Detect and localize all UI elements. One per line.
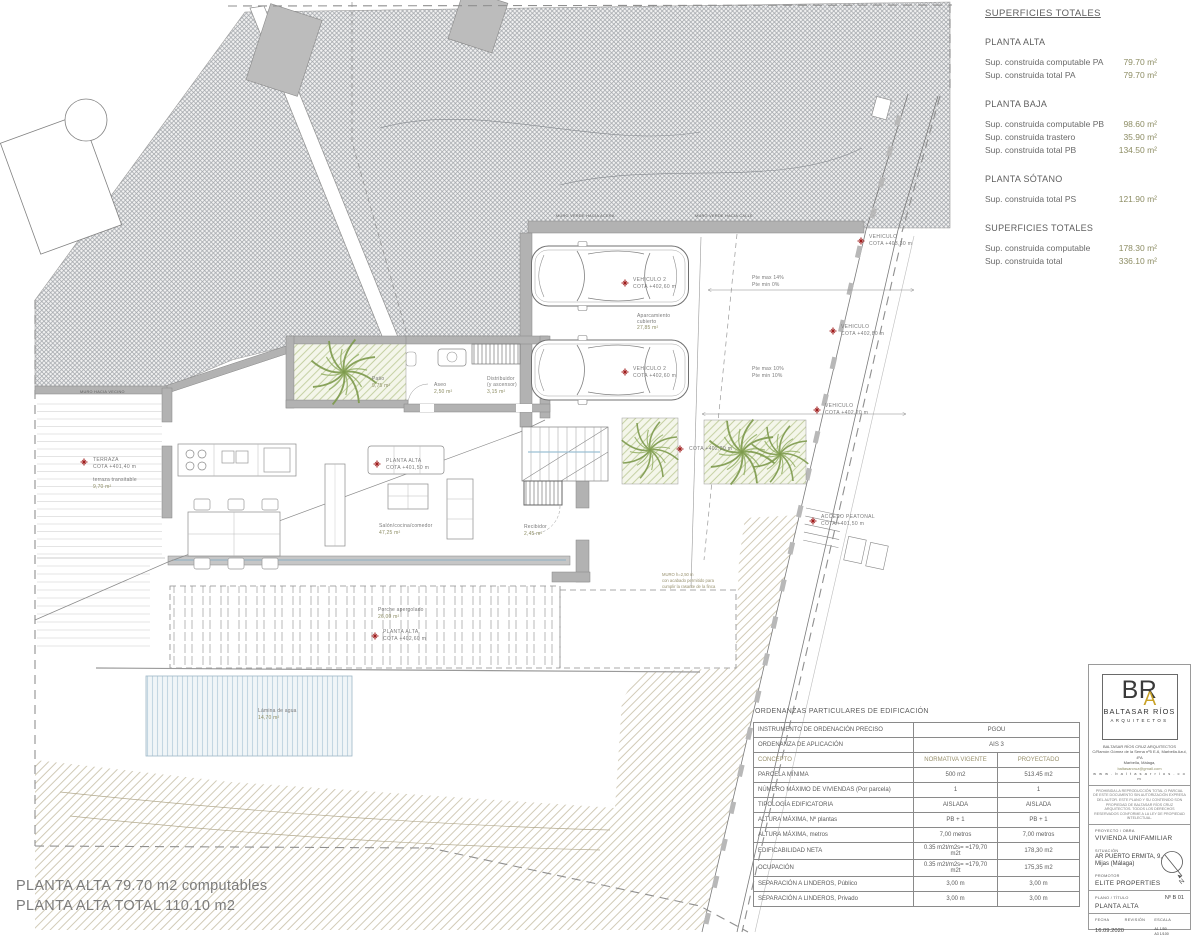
label-muro-verde-2: MURO VERDE HACIA CALLE	[695, 214, 753, 218]
svg-text:14,70 m²: 14,70 m²	[258, 715, 279, 721]
wardrobe	[472, 344, 520, 364]
svg-text:Pte min 10%: Pte min 10%	[752, 373, 783, 379]
terrace-deck	[37, 404, 165, 646]
svg-text:(y ascensor): (y ascensor)	[487, 382, 517, 388]
table-row: NÚMERO MÁXIMO DE VIVIENDAS (Por parcela)…	[754, 783, 1080, 798]
label-planta-alta: PLANTA ALTA	[386, 458, 422, 464]
superficies-panel: SUPERFICIES TOTALES PLANTA ALTA Sup. con…	[985, 8, 1157, 268]
sup-row: Sup. construida computable PB98.60 m²	[985, 118, 1157, 131]
label-vehiculo-top: VEHICULO 2	[633, 277, 666, 283]
table-row: SEPARACIÓN A LINDEROS, Público3,00 m3,00…	[754, 877, 1080, 892]
label-vehiculo-40220: VEHICULO	[825, 403, 853, 409]
table-row: OCUPACIÓN0.35 m2t/m2s= =179,70 m2t175,35…	[754, 860, 1080, 877]
table-row: ORDENANZA DE APLICACIÓNAIS 3	[754, 738, 1080, 753]
label-pte-lower: Pte max 10%	[752, 366, 784, 372]
bathroom-fixtures	[406, 349, 466, 404]
label-vehiculo-bottom: VEHICULO 2	[633, 366, 666, 372]
sup-row: Sup. construida total PA79.70 m²	[985, 69, 1157, 82]
promotor-label: PROMOTOR	[1095, 874, 1184, 878]
section-planta-sotano: PLANTA SÓTANO	[985, 174, 1157, 184]
slab-edge	[96, 668, 700, 672]
label-vehiculo-403: VEHICULO	[869, 234, 897, 240]
label-recibidor: Recibidor	[524, 524, 547, 530]
logo-gold-a: A	[1144, 689, 1157, 711]
table-header-row: CONCEPTONORMATIVA VIGENTEPROYECTADO	[754, 753, 1080, 768]
svg-text:2,45 m²: 2,45 m²	[524, 531, 542, 537]
label-muro-vecino: MURO HACIA VECINO	[80, 390, 125, 394]
situacion-section: SITUACIÓN AR PUERTO ERMITA, 9, Mijas (Má…	[1089, 845, 1190, 870]
svg-text:COTA +401,40 m: COTA +401,40 m	[93, 464, 136, 470]
svg-text:COTA +401,50 m: COTA +401,50 m	[386, 465, 429, 471]
plano-section: PLANO / TÍTULO Nº B 01 PLANTA ALTA	[1089, 890, 1190, 913]
titleblock-footer: FECHA 16.09.2020 REVISIÓN ESCALA A1 1/50…	[1089, 913, 1190, 936]
svg-text:2,50 m²: 2,50 m²	[434, 389, 452, 395]
superficies-title: SUPERFICIES TOTALES	[985, 8, 1157, 19]
sup-row: Sup. construida total336.10 m²	[985, 255, 1157, 268]
promotor-value: ELITE PROPERTIES	[1095, 880, 1184, 887]
fecha-cell: FECHA 16.09.2020	[1095, 918, 1125, 936]
svg-text:COTA +402,80 m: COTA +402,80 m	[841, 331, 884, 337]
table-row: ALTURA MÁXIMA, metros7,00 metros7,00 met…	[754, 828, 1080, 843]
door-opening	[516, 404, 532, 412]
label-lamina-agua: Lámina de agua	[258, 708, 297, 714]
annotation-line1: PLANTA ALTA 79.70 m2 computables	[16, 876, 267, 896]
logo-subtitle: ARQUITECTOS	[1103, 718, 1177, 723]
table-row: EDIFICABILIDAD NETA0.35 m2t/m2s= =179,70…	[754, 843, 1080, 860]
label-cota-mid: COTA +402,20 m	[689, 446, 732, 452]
label-pte-upper: Pte max 14%	[752, 275, 784, 281]
label-aseo: Aseo	[434, 382, 446, 388]
sup-row: Sup. construida total PB134.50 m²	[985, 144, 1157, 157]
svg-text:cumplir la rasante de la finca: cumplir la rasante de la finca	[662, 584, 716, 589]
svg-text:COTA +402,60 m: COTA +402,60 m	[633, 284, 676, 290]
promotor-section: PROMOTOR ELITE PROPERTIES	[1089, 870, 1190, 890]
table-row: ALTURA MÁXIMA, Nº plantasPB + 1PB + 1	[754, 813, 1080, 828]
architect-logo: BR A BALTASAR RÍOS ARQUITECTOS	[1102, 674, 1178, 740]
sup-row: Sup. construida trastero35.90 m²	[985, 131, 1157, 144]
terrain-hatch	[35, 2, 950, 393]
furniture	[178, 444, 473, 569]
svg-text:47,25 m²: 47,25 m²	[379, 530, 400, 536]
drawing-sheet: VEHICULO 2 COTA +402,60 m VEHICULO 2 COT…	[0, 0, 1200, 936]
section-planta-alta: PLANTA ALTA	[985, 37, 1157, 47]
label-salon: Salón/cocina/comedor	[379, 523, 433, 529]
plano-value: PLANTA ALTA	[1095, 903, 1184, 910]
sheet-annotation: PLANTA ALTA 79.70 m2 computables PLANTA …	[16, 876, 267, 916]
title-block: BR A BALTASAR RÍOS ARQUITECTOS BALTASAR …	[1088, 664, 1191, 930]
label-terraza-transitable: terraza transitable	[93, 477, 137, 483]
label-porche: Porche apergolado	[378, 607, 424, 613]
car-top-view-icon	[532, 242, 689, 311]
label-planta-alta-porche: PLANTA ALTA	[383, 629, 419, 635]
table-row: PARCELA MÍNIMA500 m2513.45 m2	[754, 768, 1080, 783]
svg-text:9,70 m²: 9,70 m²	[93, 484, 111, 490]
revision-cell: REVISIÓN	[1125, 918, 1155, 936]
proyecto-section: PROYECTO / OBRA VIVIENDA UNIFAMILIAR	[1089, 825, 1190, 845]
label-vehiculo-40280: VEHICULO	[841, 324, 869, 330]
section-totales: SUPERFICIES TOTALES	[985, 223, 1157, 233]
svg-text:COTA +403,30 m: COTA +403,30 m	[869, 241, 912, 247]
ordenanzas-table: INSTRUMENTO DE ORDENACIÓN PRECISOPGOU OR…	[753, 722, 1080, 907]
wardrobe	[524, 481, 562, 505]
svg-text:9,75 m²: 9,75 m²	[372, 383, 390, 389]
svg-text:Pte min 0%: Pte min 0%	[752, 282, 780, 288]
svg-text:con acabado permitido para: con acabado permitido para	[662, 578, 715, 583]
svg-text:27,85 m²: 27,85 m²	[637, 325, 658, 331]
sup-row: Sup. construida computable178.30 m²	[985, 242, 1157, 255]
staircase	[522, 427, 608, 481]
plano-label: PLANO / TÍTULO	[1095, 896, 1129, 900]
label-muro-verde-1: MURO VERDE HACIA ACERA	[556, 214, 615, 218]
label-terraza: TERRAZA	[93, 457, 119, 463]
door-opening	[420, 404, 434, 412]
svg-text:26,00 m²: 26,00 m²	[378, 614, 399, 620]
table-row: INSTRUMENTO DE ORDENACIÓN PRECISOPGOU	[754, 723, 1080, 738]
label-muro-nota: MURO h=2,50 m	[662, 572, 694, 577]
svg-text:COTA +402,20 m: COTA +402,20 m	[825, 410, 868, 416]
pergola	[170, 586, 560, 668]
svg-text:COTA +402,60 m: COTA +402,60 m	[633, 373, 676, 379]
fecha-value: 16.09.2020	[1095, 928, 1125, 934]
legal-notice: PROHIBIDA LA REPRODUCCIÓN TOTAL O PARCIA…	[1089, 785, 1190, 825]
firm-address: BALTASAR RÍOS CRUZ ARQUITECTOS C/Ramón G…	[1091, 744, 1188, 782]
escala-cell: ESCALA A1 1/50A3 1/100	[1154, 918, 1184, 936]
proyecto-label: PROYECTO / OBRA	[1095, 829, 1184, 833]
logo-name: BALTASAR RÍOS	[1103, 707, 1177, 716]
annotation-line2: PLANTA ALTA TOTAL 110.10 m2	[16, 896, 267, 916]
table-row: SEPARACIÓN A LINDEROS, Privado3,00 m3,00…	[754, 892, 1080, 907]
svg-text:COTA +401,50 m: COTA +401,50 m	[821, 521, 864, 527]
driveway-ramp	[691, 234, 914, 588]
proyecto-value: VIVIENDA UNIFAMILIAR	[1095, 835, 1184, 842]
terrace-outline	[560, 590, 736, 668]
svg-text:3,15 m²: 3,15 m²	[487, 389, 505, 395]
water-pond	[146, 676, 352, 756]
label-acceso-peatonal: ACCESO PEATONAL	[821, 514, 875, 520]
label-patio: Patio	[372, 376, 384, 382]
sheet-number: B 01	[1172, 895, 1184, 901]
section-planta-baja: PLANTA BAJA	[985, 99, 1157, 109]
ordenanzas-title: ORDENANZAS PARTICULARES DE EDIFICACIÓN	[755, 708, 1079, 715]
svg-text:COTA +402,60 m: COTA +402,60 m	[383, 636, 426, 642]
sup-row: Sup. construida total PS121.90 m²	[985, 193, 1157, 206]
table-row: TIPOLOGÍA EDIFICATORIAAISLADAAISLADA	[754, 798, 1080, 813]
ordenanzas-panel: ORDENANZAS PARTICULARES DE EDIFICACIÓN I…	[753, 708, 1079, 907]
sup-row: Sup. construida computable PA79.70 m²	[985, 56, 1157, 69]
